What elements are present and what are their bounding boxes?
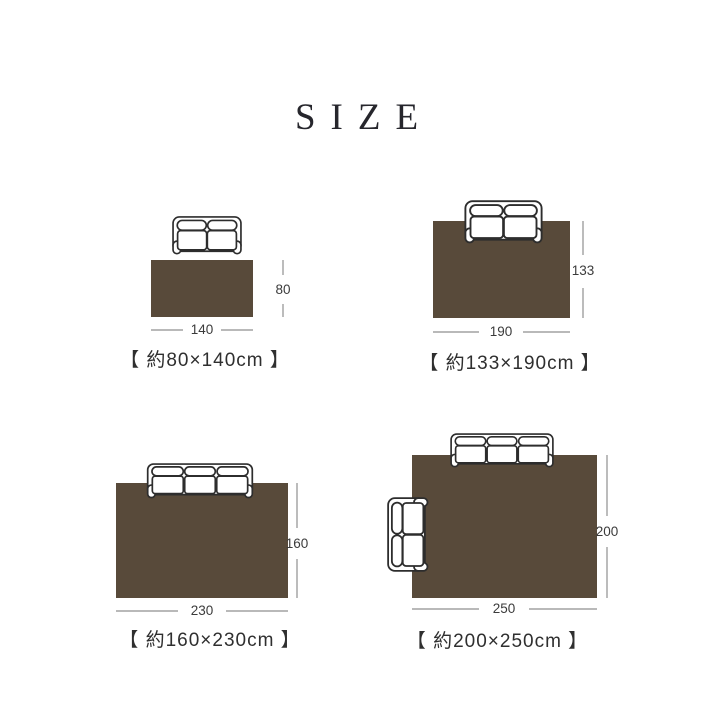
width-dimension-line: 230 [116,603,288,618]
size-caption: 【 約200×250cm 】 [375,626,620,653]
width-dimension-label: 140 [191,322,214,337]
rug-diagram-80x140: 80 140 [100,195,310,341]
height-dimension-line: 200 [596,455,619,598]
width-dimension-line: 250 [412,601,597,616]
height-dimension-label: 160 [286,536,309,551]
width-dimension-label: 190 [490,324,513,339]
sofa-2-seat-top-icon [173,217,241,254]
size-panel-80x140: 80 140 【 約80×140cm 】 [100,195,310,390]
rug-swatch [116,483,288,598]
rug-diagram-133x190: 133 190 [400,185,620,343]
size-caption: 【 約133×190cm 】 [400,348,620,375]
sofa-3-seat-top-icon [148,464,253,497]
rug-diagram-160x230: 160 230 [90,440,330,620]
size-caption: 【 約160×230cm 】 [90,625,330,652]
size-panel-133x190: 133 190 【 約133×190cm 】 [400,185,620,385]
height-dimension-label: 80 [275,282,290,297]
width-dimension-label: 250 [493,601,516,616]
height-dimension-label: 133 [572,263,595,278]
rug-diagram-200x250: 200 250 [375,420,620,620]
width-dimension-line: 190 [433,324,570,339]
sofa-2-seat-side-icon [388,498,427,571]
width-dimension-line: 140 [151,322,253,337]
rug-swatch [412,455,597,598]
height-dimension-line: 133 [572,221,595,318]
width-dimension-label: 230 [191,603,214,618]
sofa-2-seat-top-icon [465,201,541,242]
size-caption: 【 約80×140cm 】 [100,345,310,372]
sofa-3-seat-top-icon [451,434,553,467]
size-chart: SIZE 80 140 【 約80×140cm 】 [0,0,720,720]
size-panel-200x250: 200 250 【 約200×250cm 】 [375,420,620,658]
rug-swatch [151,260,253,317]
size-panel-160x230: 160 230 【 約160×230cm 】 [90,440,330,658]
height-dimension-label: 200 [596,524,619,539]
page-title: SIZE [0,99,720,136]
height-dimension-line: 80 [275,260,290,317]
height-dimension-line: 160 [286,483,309,598]
